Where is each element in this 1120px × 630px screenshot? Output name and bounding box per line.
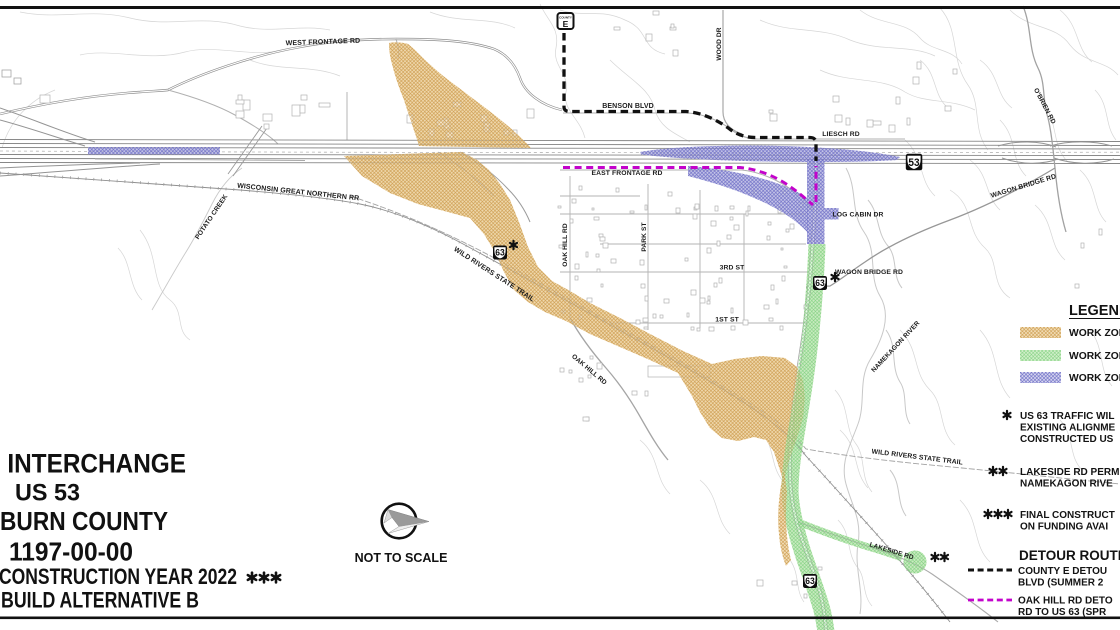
svg-text:63: 63	[815, 278, 825, 288]
svg-text:E: E	[563, 19, 569, 29]
svg-text:DETOUR ROUTE: DETOUR ROUTE	[1019, 548, 1120, 563]
svg-text:COUNTY E DETOU: COUNTY E DETOU	[1018, 566, 1107, 577]
svg-text:NAMEKAGON RIVE: NAMEKAGON RIVE	[1020, 479, 1113, 490]
svg-text:BLVD (SUMMER 2: BLVD (SUMMER 2	[1018, 578, 1104, 589]
svg-text:WORK ZONE 20: WORK ZONE 20	[1069, 328, 1120, 339]
svg-text:WORK ZONE 20: WORK ZONE 20	[1069, 373, 1120, 384]
svg-text:3 INTERCHANGE: 3 INTERCHANGE	[0, 449, 186, 479]
svg-text:US 53: US 53	[15, 480, 80, 507]
svg-text:BENSON BLVD: BENSON BLVD	[602, 103, 654, 110]
svg-text:63: 63	[495, 248, 505, 258]
svg-text:PARK ST: PARK ST	[641, 222, 648, 251]
svg-text:LIESCH RD: LIESCH RD	[822, 131, 860, 138]
svg-text:RD TO US 63 (SPR: RD TO US 63 (SPR	[1018, 607, 1107, 618]
svg-text:63: 63	[805, 576, 815, 586]
svg-text:EAST FRONTAGE RD: EAST FRONTAGE RD	[592, 170, 663, 177]
svg-text:BUILD ALTERNATIVE B: BUILD ALTERNATIVE B	[1, 588, 199, 613]
svg-text:53: 53	[908, 157, 919, 169]
svg-text:LAKESIDE RD PERM: LAKESIDE RD PERM	[1020, 467, 1119, 478]
svg-text:LEGEND: LEGEND	[1069, 303, 1120, 319]
svg-text:1ST ST: 1ST ST	[715, 317, 739, 324]
svg-text:1197-00-00: 1197-00-00	[9, 537, 133, 567]
svg-text:OAK HILL RD: OAK HILL RD	[562, 223, 569, 267]
svg-text:WORK ZONE 20: WORK ZONE 20	[1069, 351, 1120, 362]
svg-text:BURN COUNTY: BURN COUNTY	[0, 506, 168, 536]
svg-text:3RD ST: 3RD ST	[720, 265, 746, 272]
svg-text:FINAL CONSTRUCT: FINAL CONSTRUCT	[1020, 510, 1115, 521]
svg-text:ON FUNDING AVAI: ON FUNDING AVAI	[1020, 522, 1108, 533]
svg-text:NOT TO SCALE: NOT TO SCALE	[355, 551, 448, 565]
svg-text:WOOD DR: WOOD DR	[716, 27, 723, 60]
svg-text:WAGON BRIDGE RD: WAGON BRIDGE RD	[835, 269, 903, 276]
svg-text:OAK HILL RD DETO: OAK HILL RD DETO	[1018, 596, 1113, 607]
svg-text:LOG CABIN DR: LOG CABIN DR	[832, 212, 883, 219]
svg-text:CONSTRUCTION YEAR 2022: CONSTRUCTION YEAR 2022	[0, 564, 237, 589]
svg-text:CONSTRUCTED US: CONSTRUCTED US	[1020, 434, 1114, 445]
svg-text:US 63 TRAFFIC WIL: US 63 TRAFFIC WIL	[1020, 411, 1114, 422]
svg-text:EXISTING ALIGNME: EXISTING ALIGNME	[1020, 423, 1116, 434]
